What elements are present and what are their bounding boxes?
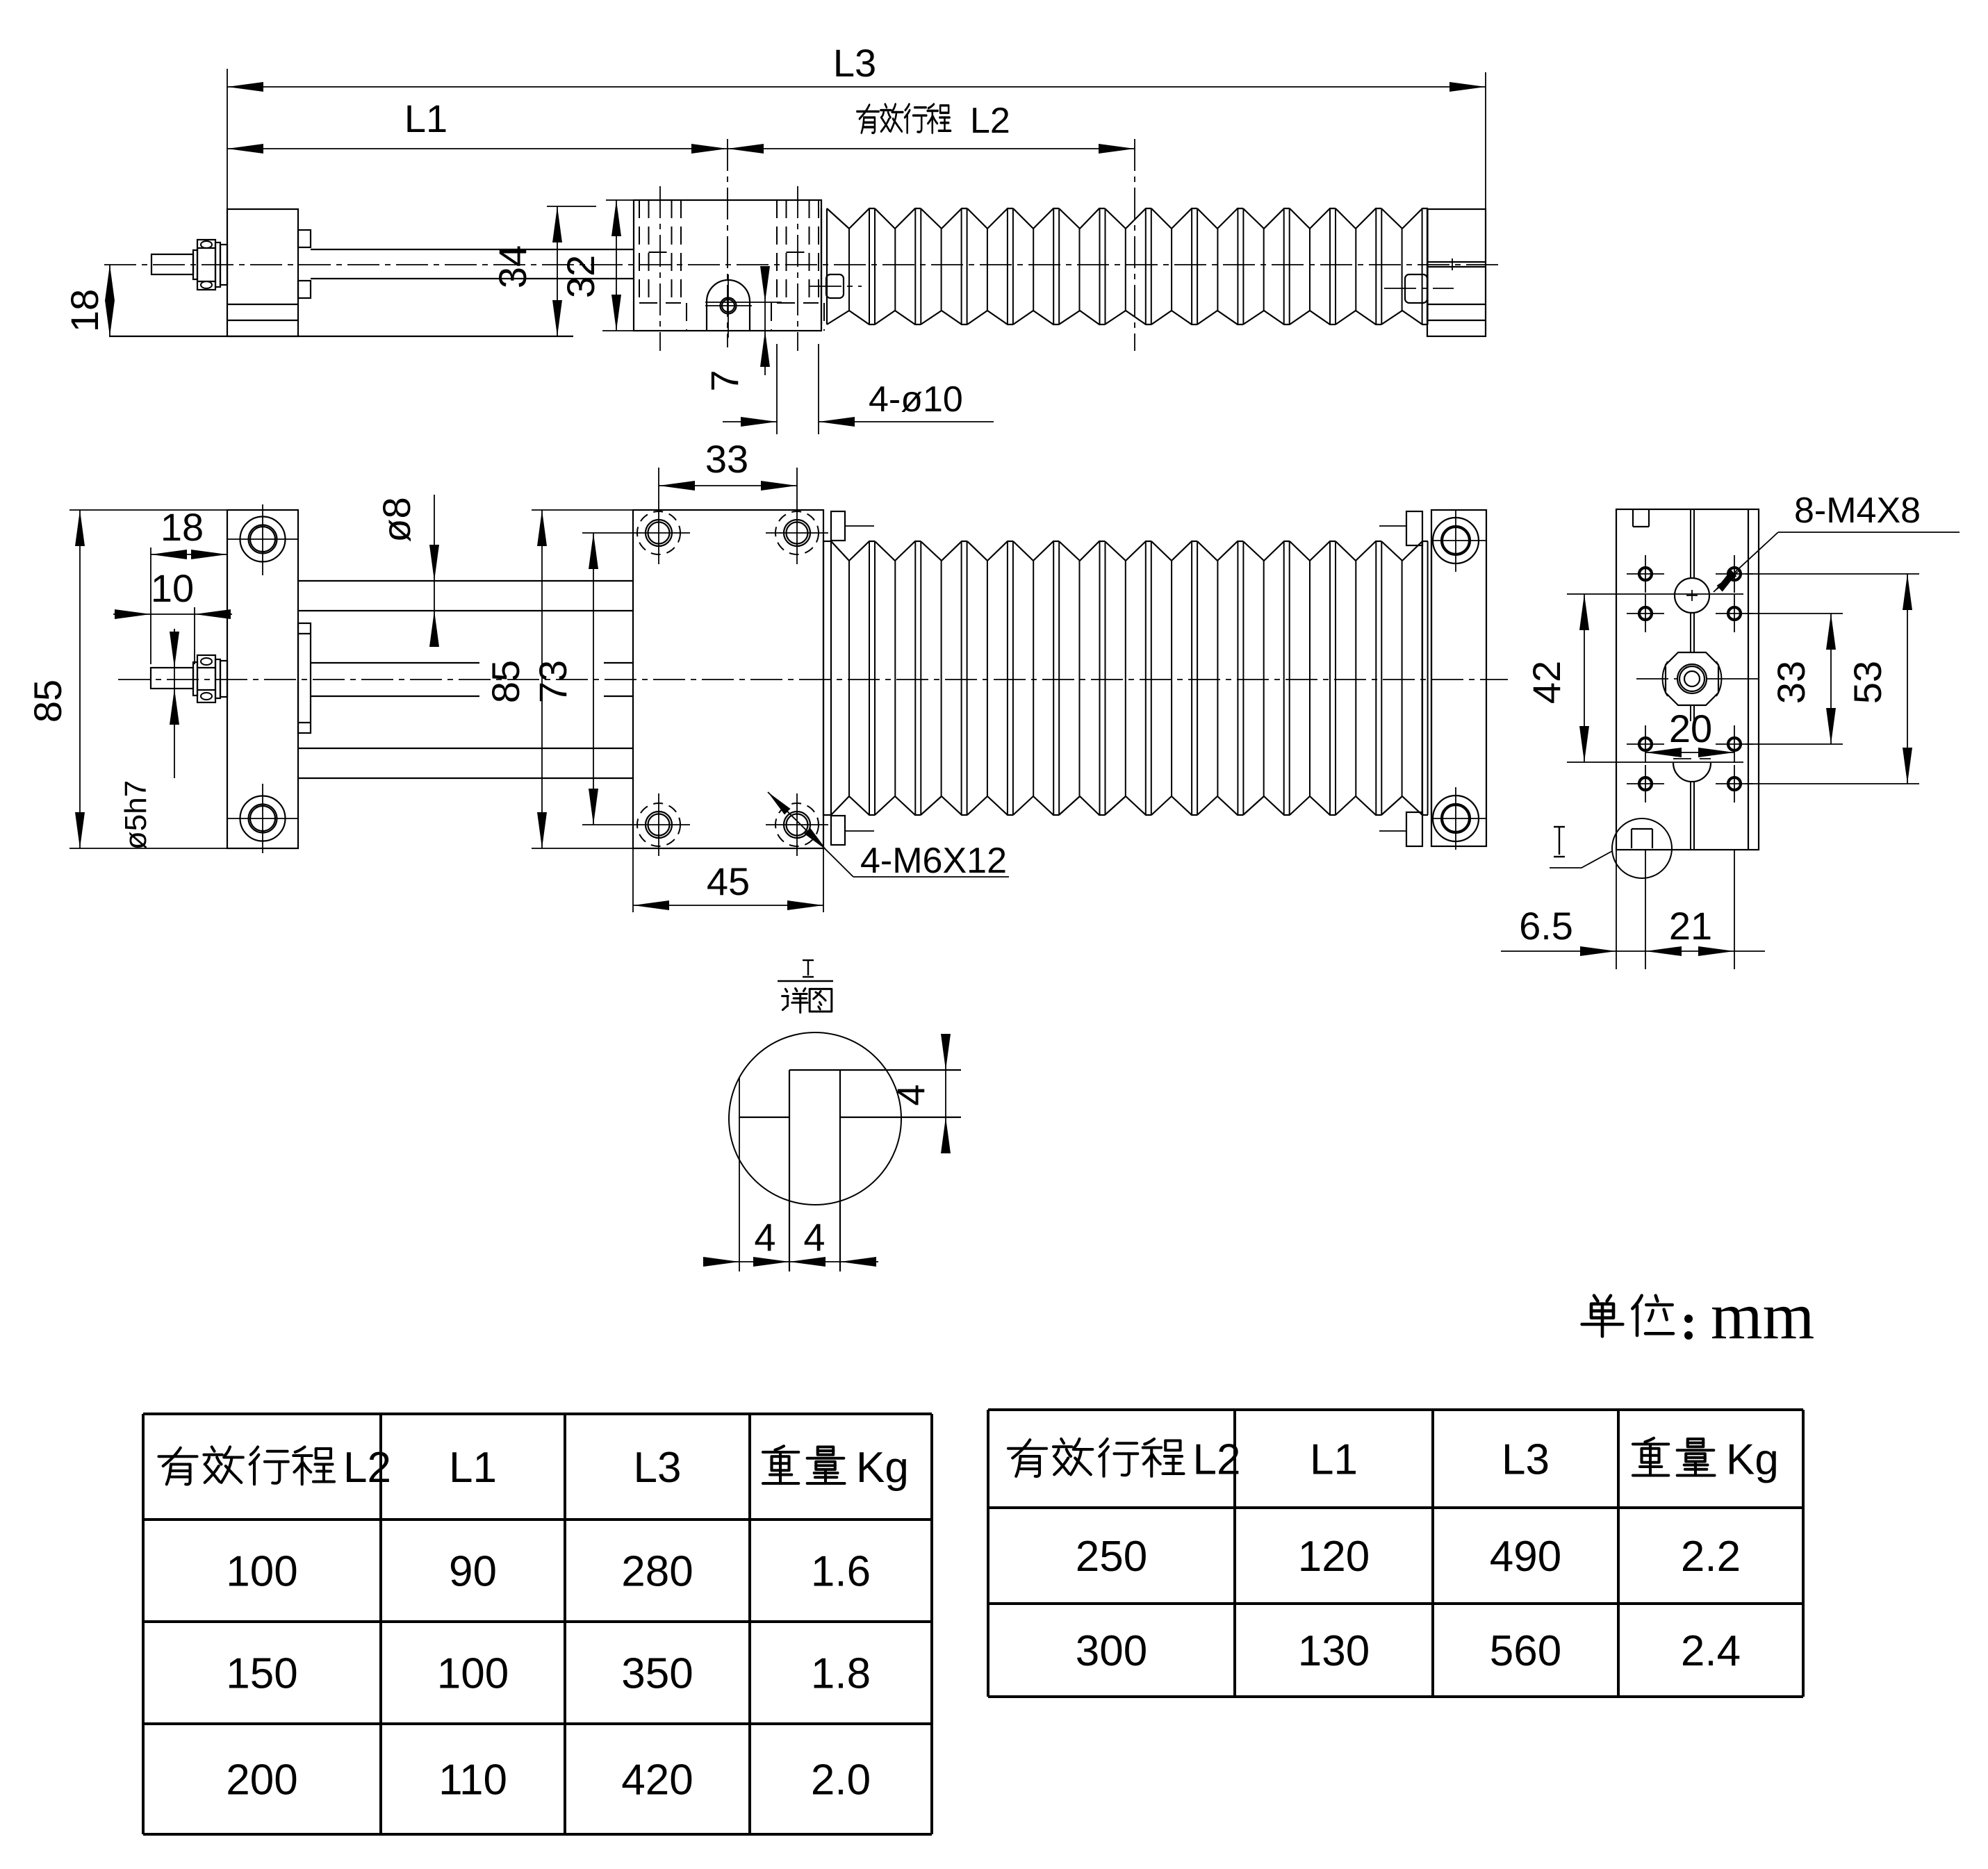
svg-text:1.8: 1.8 bbox=[811, 1650, 871, 1698]
svg-text:150: 150 bbox=[226, 1650, 297, 1698]
svg-text:18: 18 bbox=[161, 505, 204, 549]
svg-text:Kg: Kg bbox=[1726, 1436, 1779, 1484]
svg-text:4: 4 bbox=[803, 1215, 825, 1259]
svg-text:2.0: 2.0 bbox=[811, 1756, 871, 1804]
svg-text:L3: L3 bbox=[1502, 1436, 1550, 1484]
svg-text:L3: L3 bbox=[833, 41, 876, 85]
svg-text:350: 350 bbox=[621, 1650, 693, 1698]
svg-text:490: 490 bbox=[1490, 1533, 1561, 1581]
svg-text:10: 10 bbox=[151, 566, 194, 610]
svg-text:2.2: 2.2 bbox=[1681, 1533, 1741, 1581]
svg-text:85: 85 bbox=[26, 680, 69, 723]
svg-text:L2: L2 bbox=[970, 101, 1010, 141]
svg-text:ø5h7: ø5h7 bbox=[119, 780, 153, 850]
svg-text:250: 250 bbox=[1076, 1533, 1147, 1581]
svg-text:85: 85 bbox=[484, 660, 527, 703]
svg-text:7: 7 bbox=[703, 370, 746, 391]
svg-text:130: 130 bbox=[1298, 1627, 1370, 1675]
svg-text:ø8: ø8 bbox=[375, 497, 418, 542]
svg-text:90: 90 bbox=[449, 1548, 497, 1596]
svg-text:33: 33 bbox=[1769, 661, 1813, 704]
svg-text:L1: L1 bbox=[404, 97, 447, 140]
svg-text:18: 18 bbox=[63, 289, 106, 332]
svg-text:L2: L2 bbox=[1193, 1436, 1241, 1484]
svg-text:Kg: Kg bbox=[856, 1444, 909, 1492]
svg-text:4: 4 bbox=[754, 1215, 775, 1259]
svg-text:L2: L2 bbox=[343, 1444, 391, 1492]
svg-text:300: 300 bbox=[1076, 1627, 1147, 1675]
svg-text:4-ø10: 4-ø10 bbox=[869, 379, 963, 420]
svg-text:280: 280 bbox=[621, 1548, 693, 1596]
svg-text:2.4: 2.4 bbox=[1681, 1627, 1741, 1675]
svg-text:42: 42 bbox=[1525, 661, 1568, 704]
svg-text:20: 20 bbox=[1669, 707, 1712, 750]
svg-text:8-M4X8: 8-M4X8 bbox=[1794, 491, 1921, 531]
svg-text:4-M6X12: 4-M6X12 bbox=[860, 841, 1007, 881]
svg-text:L3: L3 bbox=[634, 1444, 682, 1492]
svg-text:420: 420 bbox=[621, 1756, 693, 1804]
svg-text:45: 45 bbox=[707, 859, 750, 903]
svg-text:1.6: 1.6 bbox=[811, 1548, 871, 1596]
svg-text:560: 560 bbox=[1490, 1627, 1561, 1675]
svg-text:6.5: 6.5 bbox=[1519, 904, 1573, 948]
svg-text:100: 100 bbox=[437, 1650, 509, 1698]
svg-text:100: 100 bbox=[226, 1548, 297, 1596]
svg-text:120: 120 bbox=[1298, 1533, 1370, 1581]
svg-text:110: 110 bbox=[438, 1756, 507, 1804]
svg-text:33: 33 bbox=[705, 437, 748, 481]
svg-text:21: 21 bbox=[1669, 904, 1712, 948]
svg-text:4: 4 bbox=[889, 1084, 933, 1105]
svg-text:mm: mm bbox=[1711, 1278, 1814, 1353]
svg-text:34: 34 bbox=[491, 245, 534, 288]
svg-text:L1: L1 bbox=[449, 1444, 497, 1492]
svg-text:73: 73 bbox=[531, 660, 575, 703]
svg-text:L1: L1 bbox=[1310, 1436, 1358, 1484]
svg-text:200: 200 bbox=[226, 1756, 297, 1804]
svg-text:32: 32 bbox=[559, 255, 602, 298]
svg-text:53: 53 bbox=[1846, 661, 1889, 704]
